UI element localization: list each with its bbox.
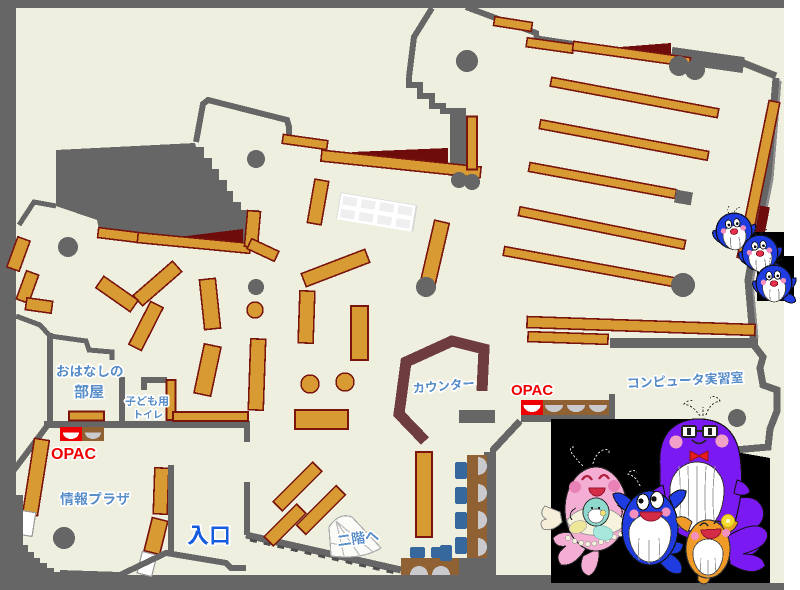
svg-text:OPAC: OPAC [51,446,96,463]
svg-text:OPAC: OPAC [511,382,553,399]
